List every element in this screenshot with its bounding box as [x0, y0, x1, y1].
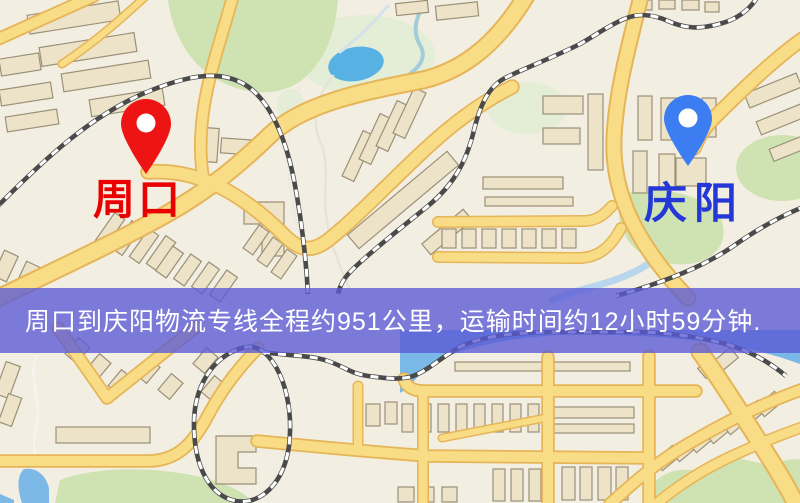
- building: [542, 229, 556, 248]
- building: [483, 177, 563, 189]
- building: [366, 404, 380, 426]
- building: [638, 96, 652, 140]
- building: [543, 96, 583, 114]
- destination-label: 庆阳: [644, 180, 744, 228]
- building: [562, 229, 576, 248]
- building: [442, 487, 457, 502]
- building: [598, 467, 611, 500]
- building: [562, 467, 575, 500]
- building: [402, 404, 413, 432]
- building: [659, 0, 675, 9]
- building: [456, 404, 467, 432]
- building: [552, 407, 634, 418]
- building: [552, 424, 634, 433]
- building: [543, 128, 580, 144]
- building: [588, 94, 603, 170]
- building: [529, 469, 541, 501]
- building: [398, 487, 414, 502]
- building: [705, 2, 719, 12]
- building: [442, 229, 456, 248]
- building: [493, 469, 505, 501]
- building: [462, 229, 476, 248]
- banner-text: 周口到庆阳物流专线全程约951公里，运输时间约12小时59分钟.: [25, 308, 761, 336]
- building: [56, 427, 150, 443]
- building: [485, 197, 573, 206]
- building: [438, 404, 449, 432]
- route-banner: 周口到庆阳物流专线全程约951公里，运输时间约12小时59分钟.: [0, 288, 800, 353]
- building: [385, 402, 397, 424]
- building: [502, 229, 516, 248]
- building: [580, 467, 592, 500]
- building: [482, 229, 496, 248]
- map-canvas[interactable]: 周口 庆阳 周口到庆阳物流专线全程约951公里，运输时间约12小时59分钟.: [0, 0, 800, 503]
- origin-label: 周口: [93, 176, 183, 223]
- building: [682, 0, 699, 10]
- building: [522, 229, 536, 248]
- building: [511, 469, 523, 501]
- building: [395, 0, 428, 15]
